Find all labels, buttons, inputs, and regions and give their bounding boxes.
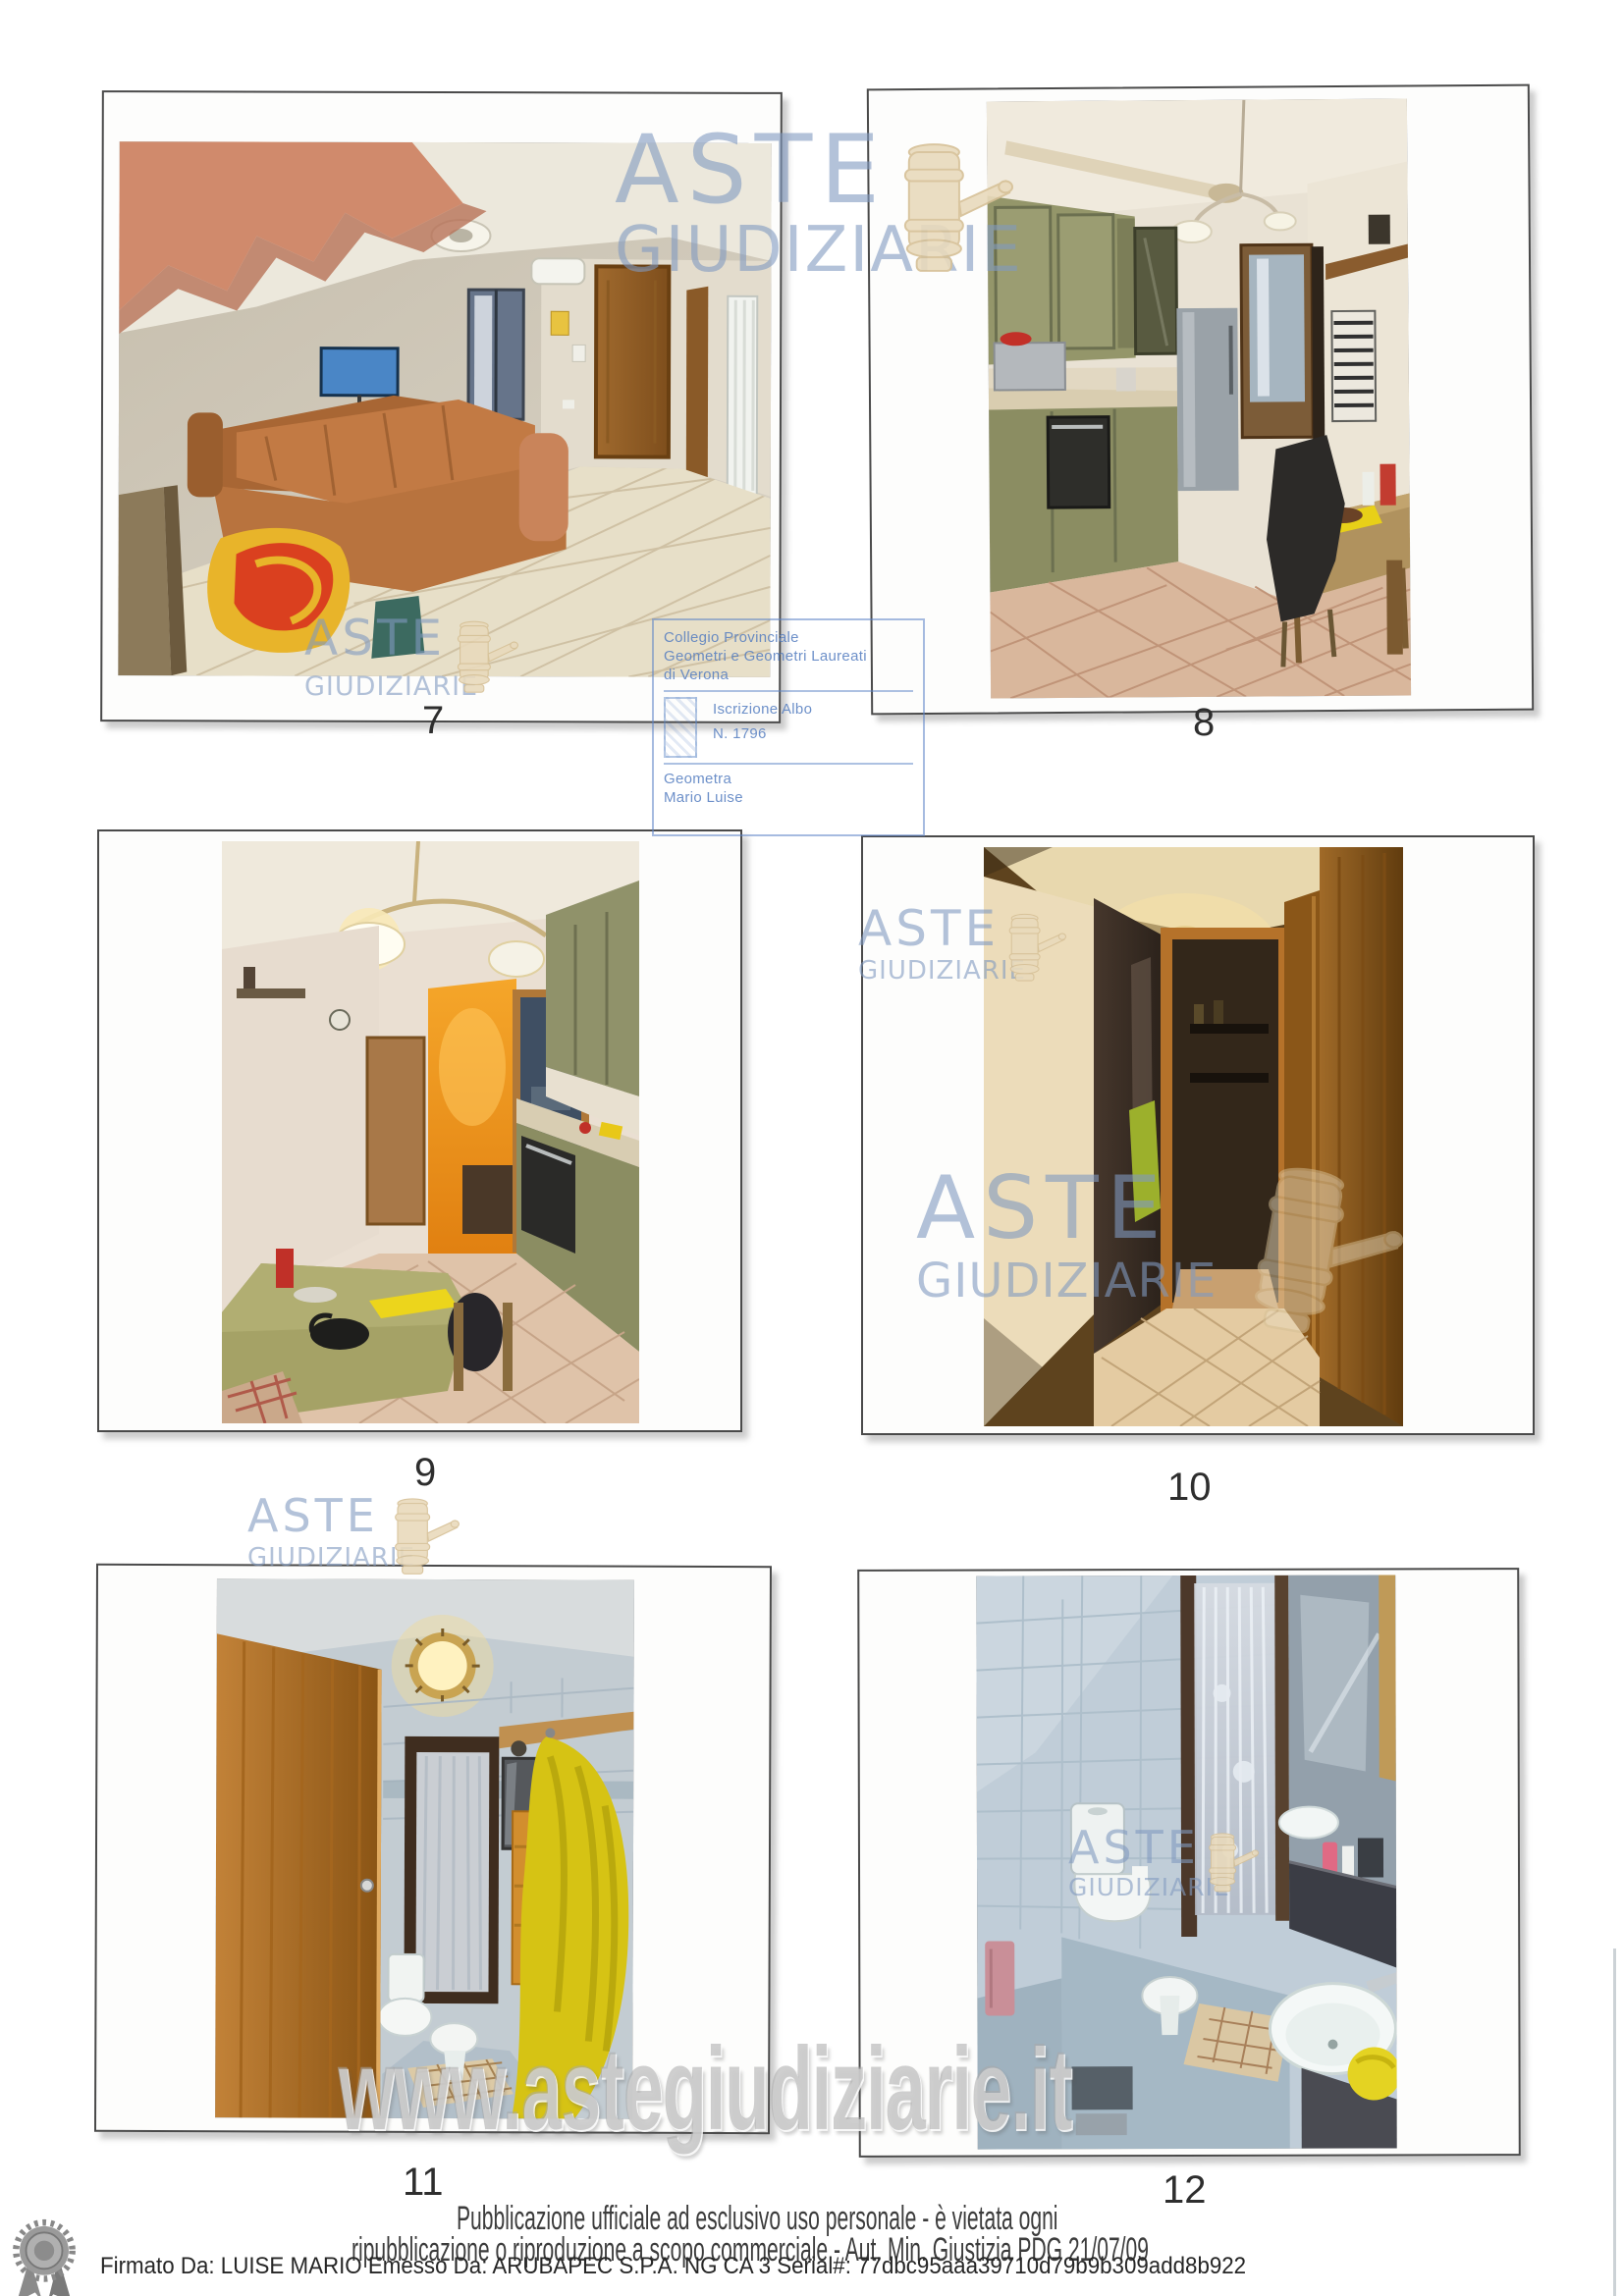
photo-11 xyxy=(215,1578,634,2118)
stamp-emblem-icon xyxy=(664,697,697,758)
photo-card-9 xyxy=(97,829,742,1432)
photo-9-label: 9 xyxy=(414,1453,436,1492)
photo-10 xyxy=(984,847,1403,1426)
photo-12-label: 12 xyxy=(1163,2170,1207,2210)
photo-card-8 xyxy=(867,84,1534,716)
footer-signature-line: Firmato Da: LUISE MARIO Emesso Da: ARUBA… xyxy=(100,2255,1246,2278)
photo-12-image xyxy=(976,1575,1397,2149)
photo-8-label: 8 xyxy=(1193,703,1215,742)
stamp-register-number: N. 1796 xyxy=(713,721,812,747)
stamp-register-label: Iscrizione Albo xyxy=(713,697,812,722)
photo-7-image xyxy=(118,141,771,677)
stamp-org-line1: Collegio Provinciale xyxy=(664,628,913,647)
photo-card-11 xyxy=(94,1564,772,2134)
photo-11-label: 11 xyxy=(403,2163,444,2202)
scanned-auction-photo-page: 7 8 9 10 11 12 ASTE GIUDIZIARIE ASTE GIU… xyxy=(0,0,1623,2296)
stamp-divider xyxy=(664,690,913,692)
photo-7 xyxy=(118,141,771,677)
photo-8-image xyxy=(987,99,1411,699)
photo-9-image xyxy=(222,841,639,1423)
photo-8 xyxy=(987,99,1411,699)
photo-10-label: 10 xyxy=(1167,1468,1212,1507)
photo-12 xyxy=(976,1575,1397,2149)
stamp-org-line2: Geometri e Geometri Laureati xyxy=(664,647,913,666)
photo-7-label: 7 xyxy=(422,701,444,740)
signature-seal-icon xyxy=(8,2218,81,2296)
stamp-org-line3: di Verona xyxy=(664,666,913,684)
photo-card-12 xyxy=(857,1568,1521,2158)
photo-11-image xyxy=(215,1578,634,2118)
photo-10-image xyxy=(984,847,1403,1426)
watermark-text: ASTE xyxy=(247,1494,415,1538)
stamp-name: Mario Luise xyxy=(664,788,913,807)
stamp-title: Geometra xyxy=(664,770,913,788)
aste-watermark-photo-11: ASTE GIUDIZIARIE xyxy=(247,1494,415,1572)
photo-9 xyxy=(222,841,639,1423)
photo-card-10 xyxy=(861,835,1535,1435)
stamp-divider xyxy=(664,763,913,765)
surveyor-stamp: Collegio Provinciale Geometri e Geometri… xyxy=(652,618,925,836)
scan-edge-artifact xyxy=(1613,1949,1616,2296)
